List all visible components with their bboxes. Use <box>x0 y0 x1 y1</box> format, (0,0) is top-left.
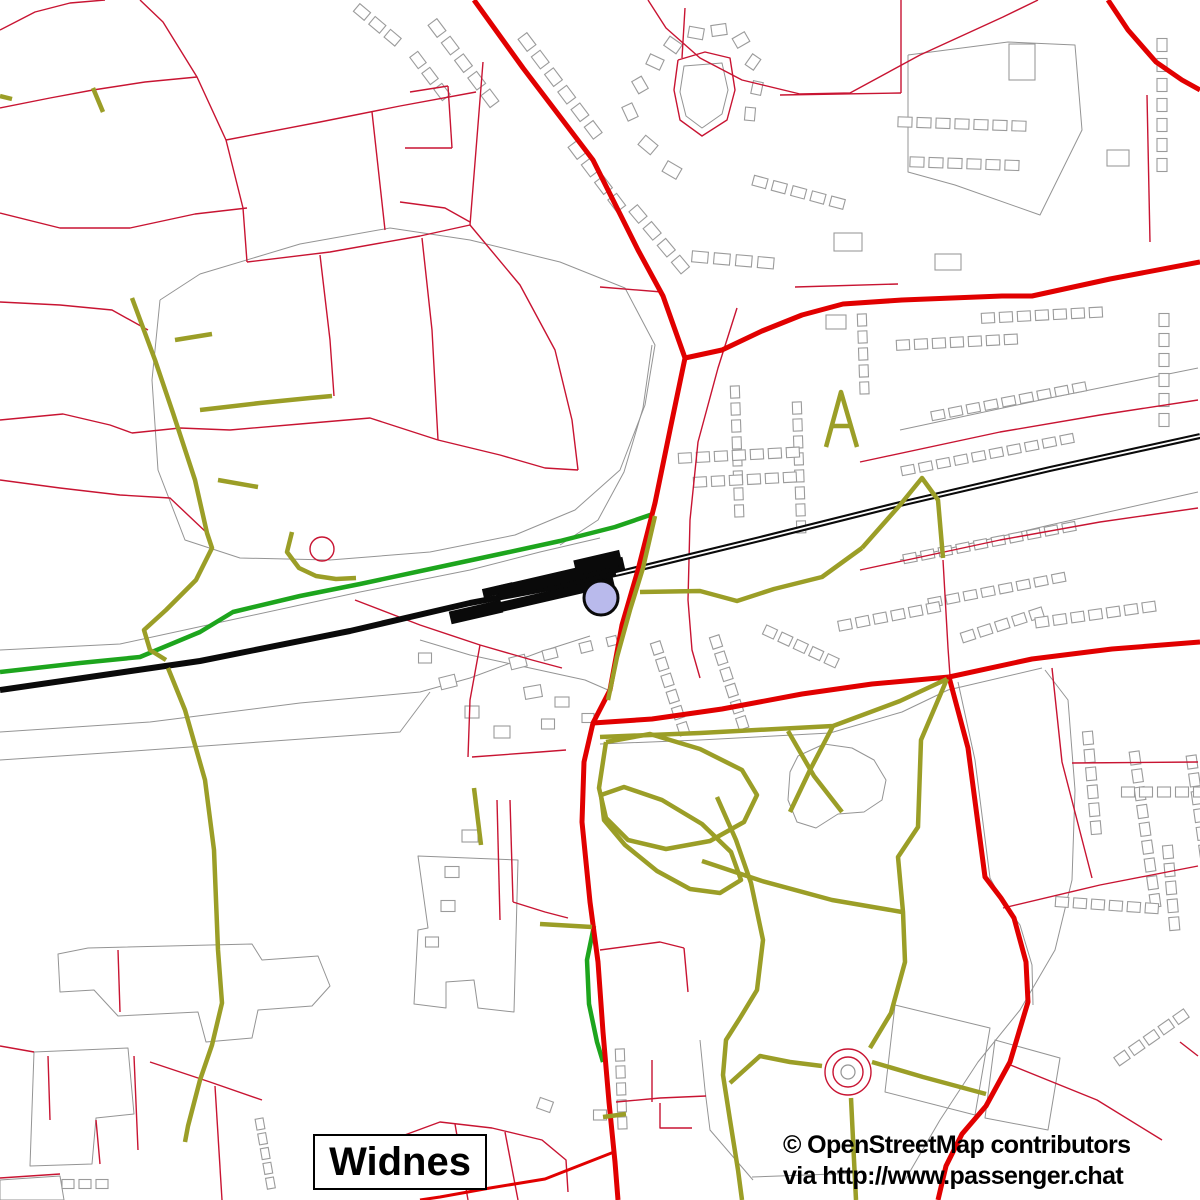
railway-station-marker[interactable] <box>584 581 618 615</box>
map-canvas <box>0 0 1200 1200</box>
attribution-line1: © OpenStreetMap contributors <box>783 1131 1130 1159</box>
paths-olive <box>0 88 986 1200</box>
map-viewport[interactable]: Widnes © OpenStreetMap contributors via … <box>0 0 1200 1200</box>
place-label-widnes: Widnes <box>313 1134 487 1190</box>
attribution-line2: via http://www.passenger.chat <box>783 1162 1123 1190</box>
map-attribution: © OpenStreetMap contributors via http://… <box>783 1130 1130 1192</box>
parcel-shapes <box>0 63 1060 1200</box>
roundabout-center <box>841 1065 855 1079</box>
